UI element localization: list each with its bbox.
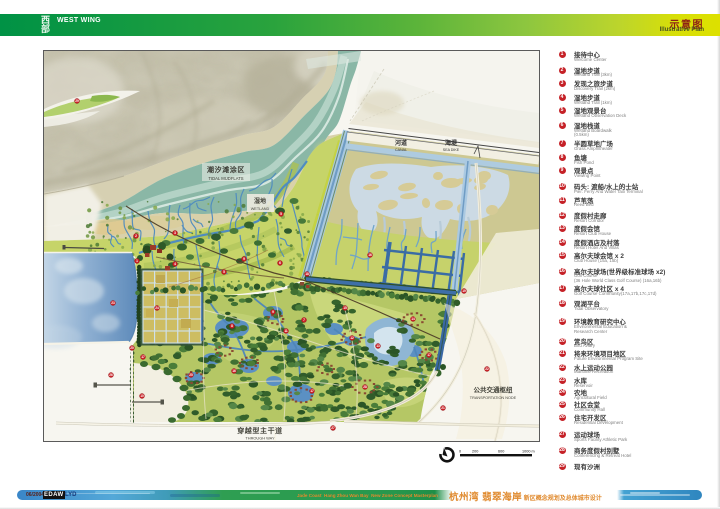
svg-text:22: 22 <box>485 367 489 371</box>
svg-text:26: 26 <box>109 373 113 377</box>
svg-text:16: 16 <box>232 369 236 373</box>
svg-text:河道: 河道 <box>395 139 407 147</box>
svg-text:3: 3 <box>174 231 176 235</box>
svg-text:穿越型主干道: 穿越型主干道 <box>237 426 283 435</box>
svg-text:12: 12 <box>350 336 354 340</box>
svg-text:19: 19 <box>462 289 466 293</box>
svg-text:8: 8 <box>231 324 233 328</box>
svg-text:2: 2 <box>135 234 137 238</box>
svg-text:5: 5 <box>223 270 225 274</box>
svg-text:20: 20 <box>130 346 134 350</box>
svg-text:1000 m: 1000 m <box>522 450 535 454</box>
svg-text:23: 23 <box>111 301 115 305</box>
svg-text:14: 14 <box>411 317 415 321</box>
svg-text:24: 24 <box>155 306 159 310</box>
svg-text:湿地: 湿地 <box>254 197 266 205</box>
svg-text:17: 17 <box>427 353 431 357</box>
svg-text:9: 9 <box>272 310 274 314</box>
svg-text:21: 21 <box>441 406 445 410</box>
svg-text:27: 27 <box>331 426 335 430</box>
svg-text:200: 200 <box>472 450 478 454</box>
svg-text:18: 18 <box>305 272 309 276</box>
svg-text:6: 6 <box>279 261 281 265</box>
svg-text:公共交通枢纽: 公共交通枢纽 <box>474 385 514 394</box>
svg-text:0: 0 <box>459 450 461 454</box>
svg-text:17: 17 <box>141 355 145 359</box>
svg-text:CANAL: CANAL <box>395 148 407 152</box>
svg-text:5: 5 <box>280 212 282 216</box>
svg-text:17: 17 <box>310 389 314 393</box>
svg-text:海堤: 海堤 <box>445 139 458 147</box>
svg-text:9: 9 <box>243 257 245 261</box>
svg-text:16: 16 <box>368 253 372 257</box>
svg-text:7: 7 <box>303 318 305 322</box>
svg-text:潮汐滩涂区: 潮汐滩涂区 <box>207 165 245 174</box>
svg-text:13: 13 <box>376 344 380 348</box>
svg-text:15: 15 <box>343 306 347 310</box>
svg-text:4: 4 <box>174 262 176 266</box>
svg-text:600: 600 <box>498 450 504 454</box>
svg-text:TRANSPORTATION NODE: TRANSPORTATION NODE <box>470 396 517 400</box>
svg-text:11: 11 <box>284 329 288 333</box>
svg-text:SEA DIKE: SEA DIKE <box>443 148 460 152</box>
svg-text:WETLAND: WETLAND <box>251 207 270 211</box>
svg-text:1: 1 <box>136 259 138 263</box>
svg-text:25: 25 <box>189 373 193 377</box>
svg-text:28: 28 <box>363 385 367 389</box>
svg-text:10: 10 <box>140 394 144 398</box>
svg-text:29: 29 <box>75 99 79 103</box>
svg-text:TIDAL MUDFLATS: TIDAL MUDFLATS <box>208 176 243 181</box>
svg-text:THROUGH WAY: THROUGH WAY <box>245 436 275 441</box>
